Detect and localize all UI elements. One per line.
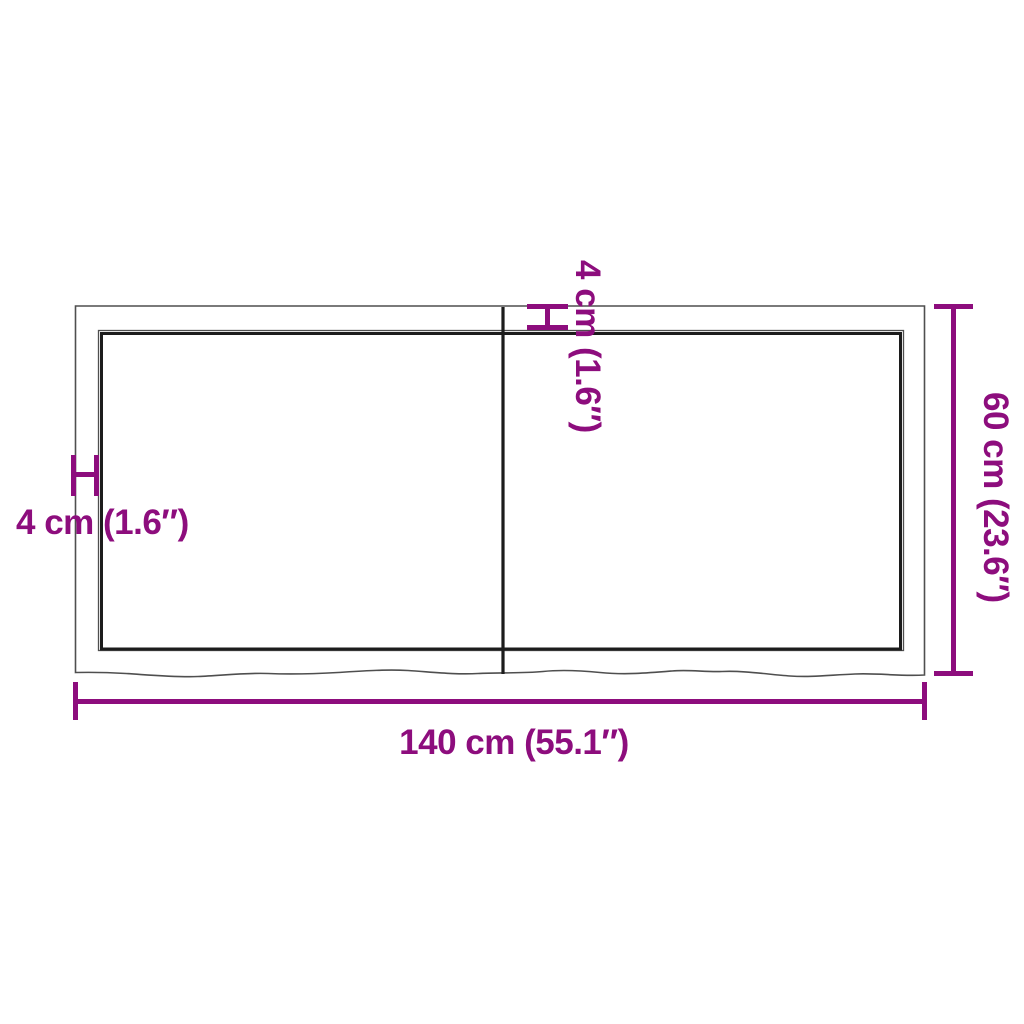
tabletop-outer-edge-live-edge: [76, 306, 925, 677]
thickness-left-connector: [71, 472, 99, 477]
tabletop-inner-edge-outline: [99, 331, 904, 651]
dimension-diagram: 140 cm (55.1″) 60 cm (23.6″) 4 cm (1.6″)…: [0, 0, 1024, 1024]
tabletop-top-surface-outline: [102, 334, 901, 650]
height-dimension-line: [951, 306, 956, 675]
height-dimension-cap-bottom: [934, 671, 973, 676]
height-dimension-label: 60 cm (23.6″): [974, 392, 1016, 603]
thickness-top-connector: [545, 304, 550, 330]
width-dimension-label: 140 cm (55.1″): [399, 722, 629, 764]
width-dimension-line: [75, 699, 925, 704]
thickness-left-label: 4 cm (1.6″): [16, 502, 189, 544]
width-dimension-cap-right: [922, 682, 927, 720]
thickness-top-label: 4 cm (1.6″): [566, 260, 608, 433]
height-dimension-cap-top: [934, 304, 973, 309]
width-dimension-cap-left: [73, 682, 78, 720]
